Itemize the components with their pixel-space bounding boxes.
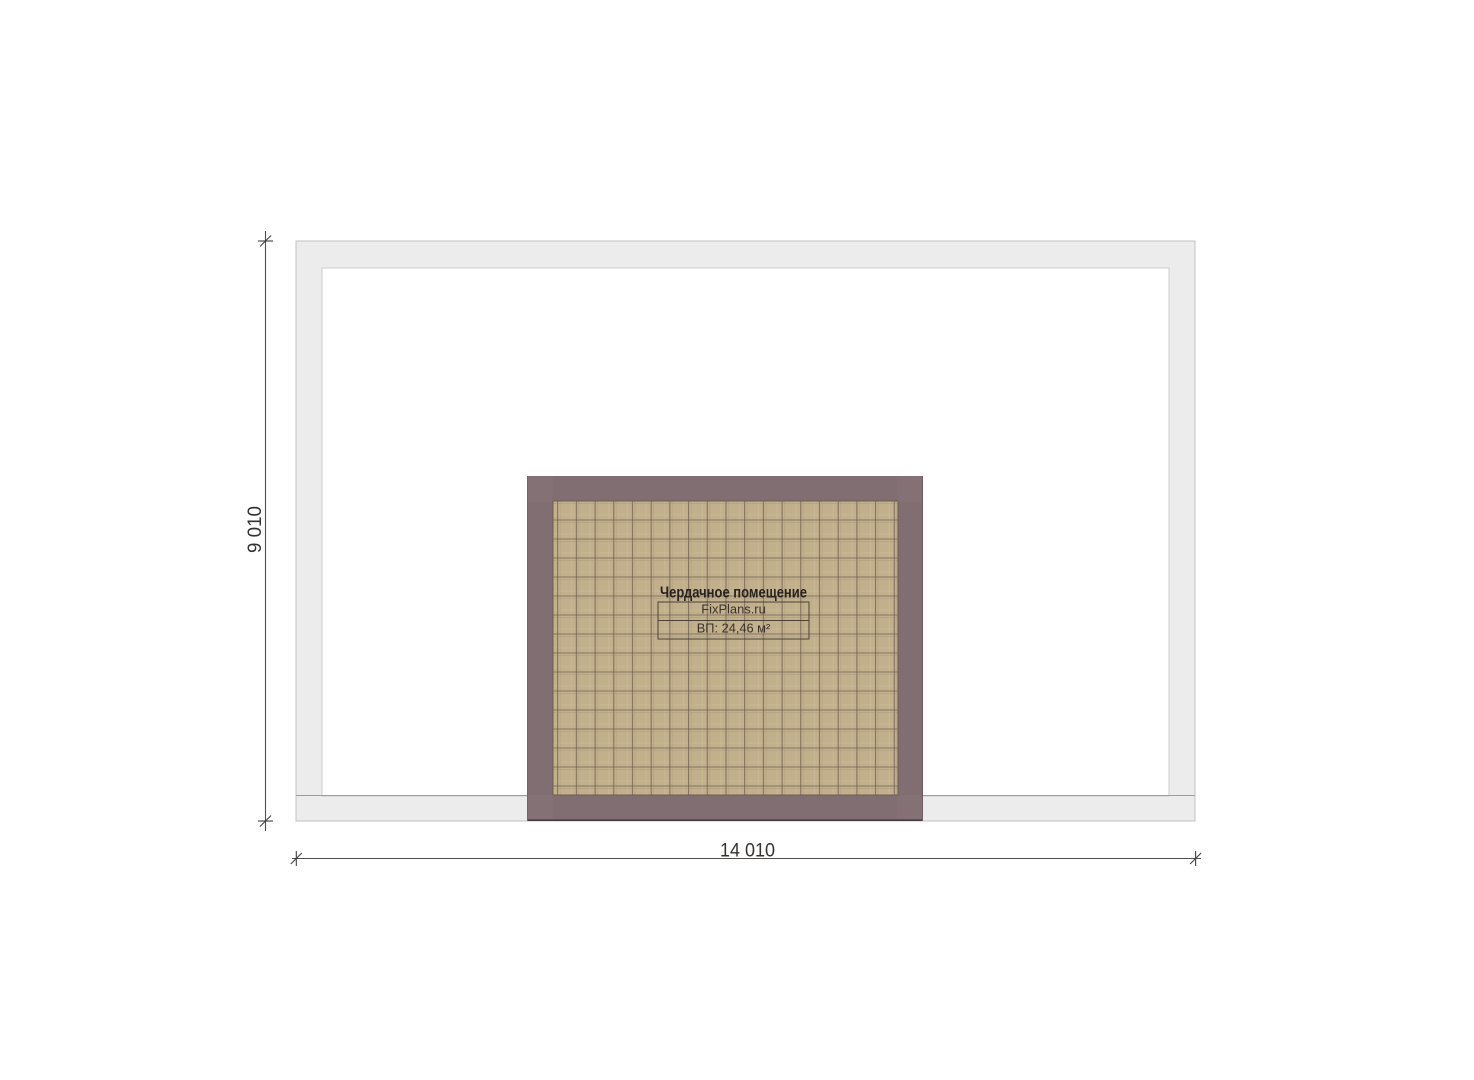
svg-text:ВП: 24,46 м²: ВП: 24,46 м² — [697, 621, 771, 636]
svg-text:9 010: 9 010 — [245, 506, 266, 553]
svg-text:Чердачное помещение: Чердачное помещение — [660, 585, 807, 602]
svg-text:14 010: 14 010 — [720, 841, 775, 862]
svg-text:FixPlans.ru: FixPlans.ru — [701, 602, 766, 617]
